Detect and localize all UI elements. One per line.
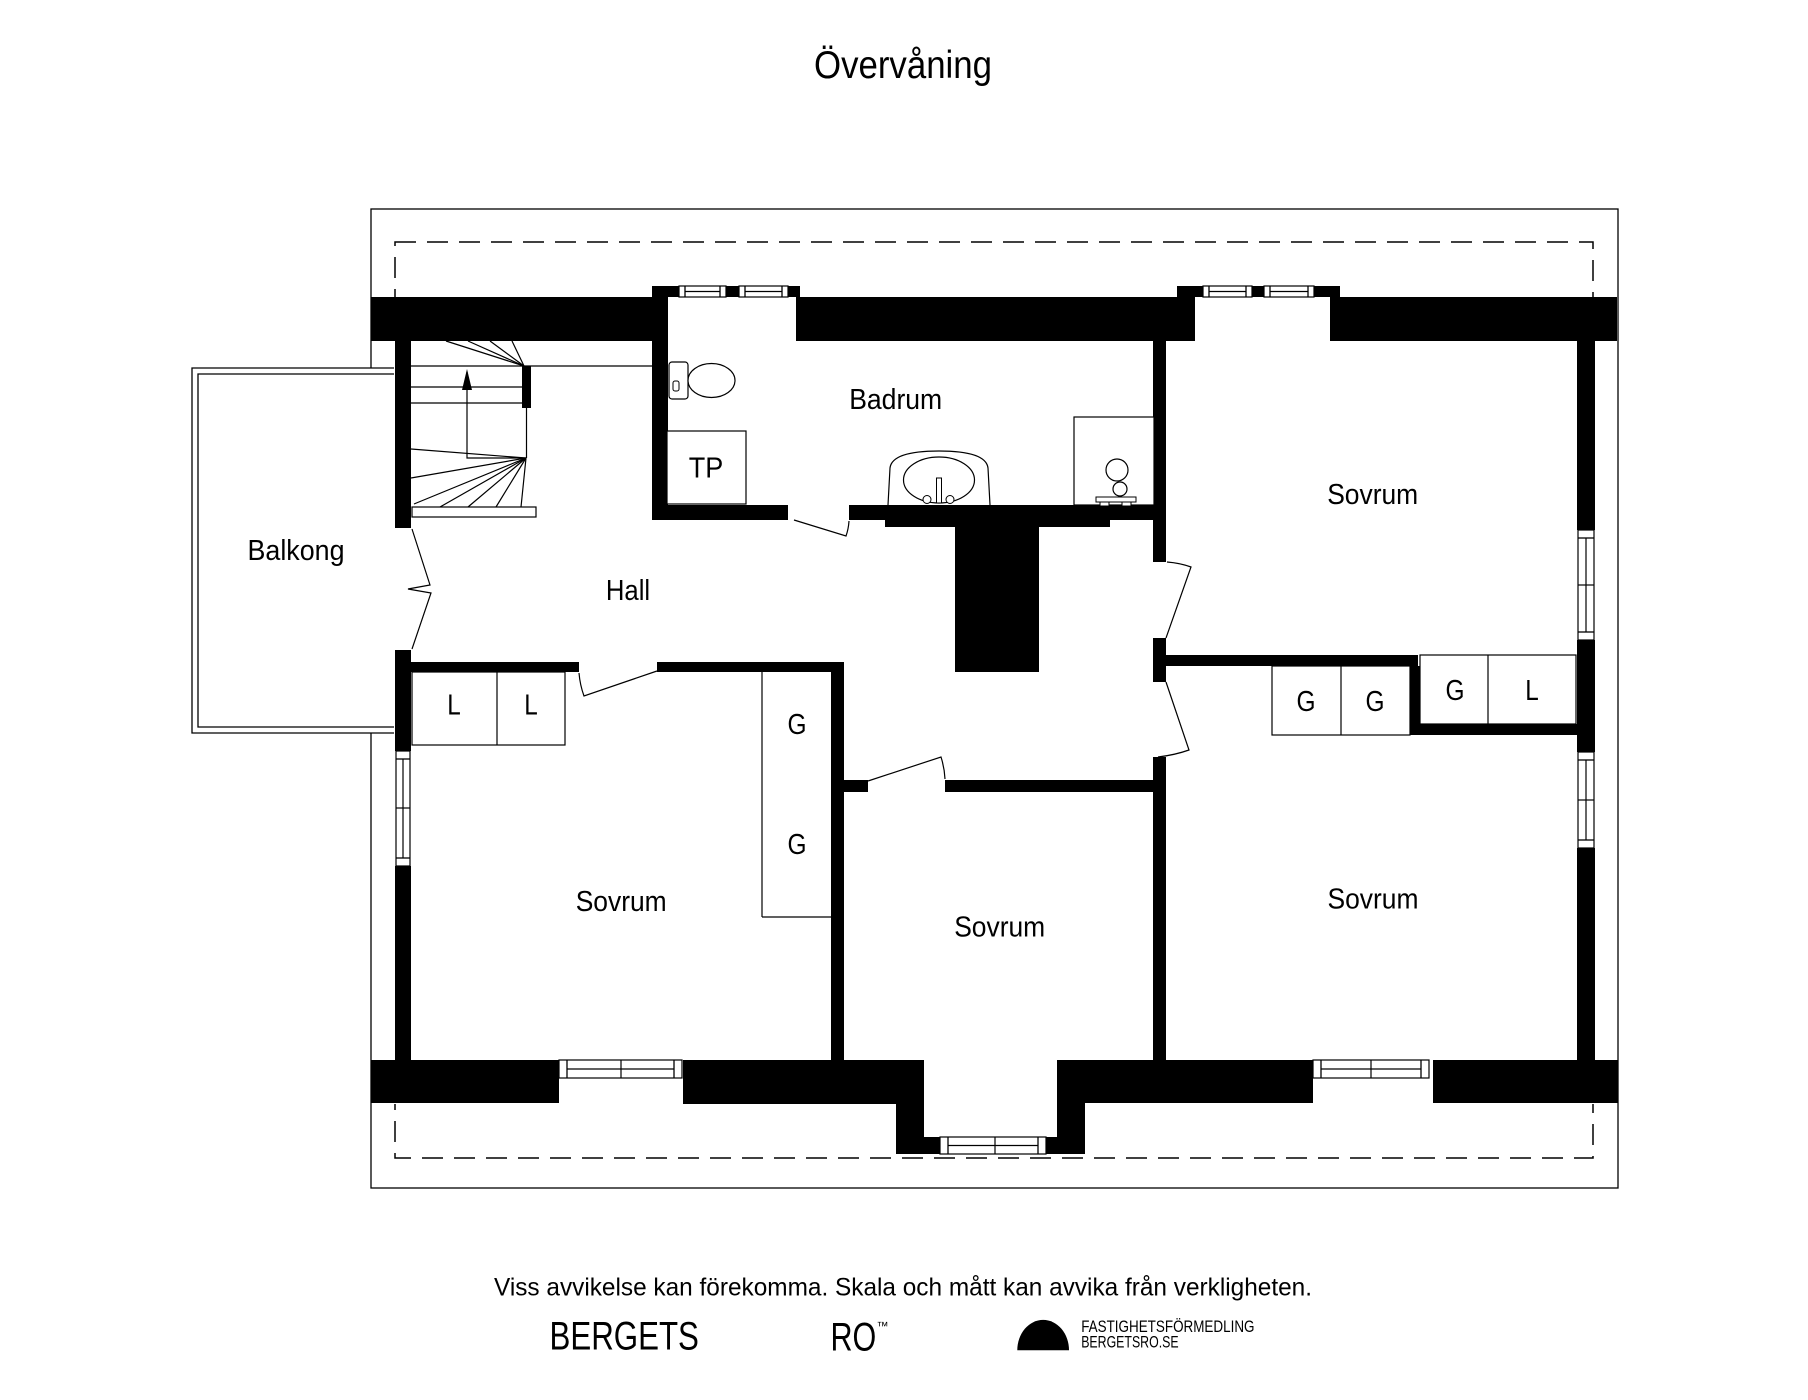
svg-text:Sovrum: Sovrum [1327,479,1418,511]
svg-text:L: L [524,690,538,722]
svg-text:TP: TP [689,453,724,485]
svg-text:G: G [788,709,807,741]
svg-text:Sovrum: Sovrum [576,886,667,918]
svg-text:L: L [1525,675,1539,707]
svg-text:G: G [1446,675,1465,707]
svg-text:Badrum: Badrum [849,384,942,416]
svg-text:BERGETSRO.SE: BERGETSRO.SE [1081,1332,1178,1351]
svg-text:G: G [788,829,807,861]
svg-text:L: L [447,690,461,722]
svg-text:Övervåning: Övervåning [814,44,992,87]
svg-text:Sovrum: Sovrum [1328,884,1419,916]
svg-text:Viss avvikelse kan förekomma.: Viss avvikelse kan förekomma. Skala och … [494,1274,1312,1302]
svg-text:G: G [1297,686,1316,718]
svg-text:Sovrum: Sovrum [954,912,1045,944]
svg-text:Balkong: Balkong [248,535,345,567]
svg-text:G: G [1366,686,1385,718]
svg-text:RO: RO [831,1316,877,1360]
svg-text:BERGETS: BERGETS [550,1315,699,1359]
svg-text:™: ™ [877,1319,889,1333]
svg-text:Hall: Hall [606,575,650,607]
